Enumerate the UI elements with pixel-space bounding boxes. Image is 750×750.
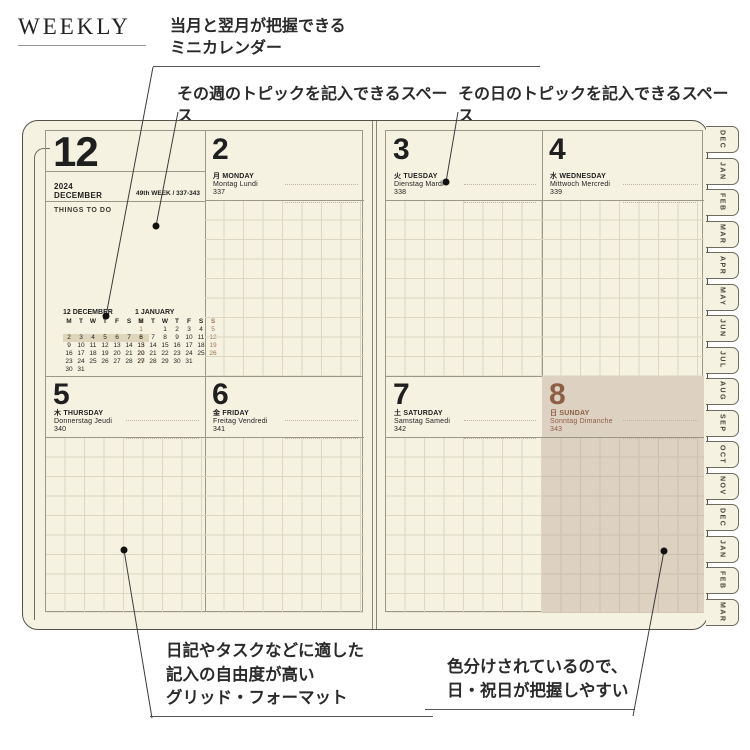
mini-calendar-cell: 20 xyxy=(111,350,123,358)
mini-calendar-cell: 25 xyxy=(87,358,99,366)
day-8-header: 8 日 SUNDAY Sonntag Dimanche 343 xyxy=(542,376,704,438)
day-cell-4: 4 水 WEDNESDAY Mittwoch Mercredi 339 xyxy=(542,131,704,376)
spine-line-left xyxy=(372,121,373,629)
month-tab-aug: AUG xyxy=(706,378,739,405)
mini-calendar-cell: 15 xyxy=(159,342,171,350)
day-topic-lines xyxy=(285,167,358,203)
mini-calendar-cell: 21 xyxy=(147,350,159,358)
month-number: 12 xyxy=(53,133,98,171)
mini-calendar-cell: 27 xyxy=(111,358,123,366)
weekday-block: 日 SUNDAY Sonntag Dimanche 343 xyxy=(550,410,613,434)
month-name-label: DECEMBER xyxy=(54,191,102,200)
mini-calendar-cell xyxy=(75,326,87,334)
mini-calendar-cell: 10 xyxy=(183,334,195,342)
writing-grid xyxy=(205,201,364,376)
mini-calendar-cell: 6 xyxy=(111,334,123,342)
day-cell-6: 6 金 FRIDAY Freitag Vendredi 341 xyxy=(205,376,364,613)
day-cell-5: 5 木 THURSDAY Donnerstag Jeudi 340 xyxy=(46,376,205,613)
writing-grid xyxy=(386,201,542,376)
day-3-header: 3 火 TUESDAY Dienstag Mardi 338 xyxy=(386,131,542,201)
month-tab-mar: MAR xyxy=(706,221,739,248)
mini-calendar-cell xyxy=(111,326,123,334)
mini-calendar-cell: 16 xyxy=(63,350,75,358)
mini-calendar-cell: 20 xyxy=(135,350,147,358)
mini-calendar-cell: 4 xyxy=(87,334,99,342)
month-tab-dec2: DEC xyxy=(706,504,739,531)
day-topic-lines xyxy=(126,403,199,439)
month-tab-mar2: MAR xyxy=(706,599,739,626)
spine-line-right xyxy=(376,121,377,629)
weekday-block: 水 WEDNESDAY Mittwoch Mercredi 339 xyxy=(550,173,610,197)
writing-grid xyxy=(46,438,205,613)
mini-calendar-cell: 9 xyxy=(63,342,75,350)
annotation-grid-format-line1: 日記やタスクなどに適した xyxy=(166,640,433,664)
writing-grid xyxy=(386,438,542,613)
month-tab-nov: NOV xyxy=(706,473,739,500)
mini-calendar-cell xyxy=(63,326,75,334)
mini-calendar-cell: 3 xyxy=(183,326,195,334)
mini-calendar-cell: T xyxy=(171,318,183,326)
date-number: 3 xyxy=(393,133,409,167)
date-number: 2 xyxy=(212,133,228,167)
mini-calendar-cell: 29 xyxy=(159,358,171,366)
annotation-grid-format: 日記やタスクなどに適した 記入の自由度が高い グリッド・フォーマット xyxy=(150,640,433,717)
annotation-grid-format-line2: 記入の自由度が高い xyxy=(166,664,433,688)
right-page: 3 火 TUESDAY Dienstag Mardi 338 4 水 WEDNE… xyxy=(385,130,703,612)
weekday-block: 金 FRIDAY Freitag Vendredi 341 xyxy=(213,410,268,434)
mini-calendar-cell: 26 xyxy=(99,358,111,366)
mini-calendar-cell: 7 xyxy=(147,334,159,342)
annotation-color-coded-line2: 日・祝日が把握しやすい xyxy=(447,679,635,703)
header-rule xyxy=(46,201,205,202)
mini-calendar-cell xyxy=(135,366,147,374)
annotation-mini-calendar-underline xyxy=(153,66,540,67)
mini-calendar-cell: 28 xyxy=(147,358,159,366)
month-rule xyxy=(46,171,205,172)
mini-calendar-cell: 9 xyxy=(171,334,183,342)
day-6-header: 6 金 FRIDAY Freitag Vendredi 341 xyxy=(205,376,364,438)
mini-calendar-cell xyxy=(147,326,159,334)
month-tab-sep: SEP xyxy=(706,410,739,437)
day-cell-2: 2 月 MONDAY Montag Lundi 337 xyxy=(205,131,364,376)
mini-calendar-cell xyxy=(87,326,99,334)
mini-calendar-cell: 14 xyxy=(123,342,135,350)
mini-calendar-cell: W xyxy=(87,318,99,326)
month-tab-oct: OCT xyxy=(706,441,739,468)
mini-calendar-cell: 3 xyxy=(75,334,87,342)
mini-calendar-cell: 8 xyxy=(159,334,171,342)
day-topic-lines xyxy=(464,167,536,203)
mini-calendar-cell: T xyxy=(99,318,111,326)
mini-calendar-cell: 17 xyxy=(75,350,87,358)
year-label: 2024 xyxy=(54,182,102,191)
mini-calendar-cell: 31 xyxy=(75,366,87,374)
mini-calendar-cell: M xyxy=(135,318,147,326)
mini-calendar-cell xyxy=(111,366,123,374)
mini-calendar-cell xyxy=(99,326,111,334)
things-to-do-label: THINGS TO DO xyxy=(54,207,112,214)
weekly-feature-diagram: WEEKLY 当月と翌月が把握できる ミニカレンダー その週のトピックを記入でき… xyxy=(0,0,750,750)
month-tab-feb: FEB xyxy=(706,189,739,216)
day-cell-8-sunday: 8 日 SUNDAY Sonntag Dimanche 343 xyxy=(542,376,704,613)
mini-calendar-cell: 6 xyxy=(135,334,147,342)
mini-calendar-cell: 23 xyxy=(171,350,183,358)
mini-calendar-cell: 16 xyxy=(171,342,183,350)
mini-calendar-cell: 23 xyxy=(63,358,75,366)
mini-calendar-cell: 7 xyxy=(123,334,135,342)
mini-calendar-cell: 24 xyxy=(183,350,195,358)
mini-calendar-cell: 22 xyxy=(159,350,171,358)
writing-grid xyxy=(205,438,364,613)
mini-calendar-cell: 2 xyxy=(63,334,75,342)
date-number: 7 xyxy=(393,378,409,412)
mini-calendar-cell: 14 xyxy=(147,342,159,350)
annotation-mini-calendar-line1: 当月と翌月が把握できる xyxy=(170,16,346,38)
mini-calendar-cell xyxy=(135,326,147,334)
mini-calendar-cell: S xyxy=(123,318,135,326)
mini-calendar-cell: 24 xyxy=(75,358,87,366)
annotation-color-coded-line1: 色分けされているので、 xyxy=(447,655,635,679)
mini-calendar-cell: 19 xyxy=(99,350,111,358)
mini-calendar-cell: 28 xyxy=(123,358,135,366)
date-number: 6 xyxy=(212,378,228,412)
writing-grid xyxy=(542,438,704,613)
day-4-header: 4 水 WEDNESDAY Mittwoch Mercredi 339 xyxy=(542,131,704,201)
mini-calendar-cell: F xyxy=(111,318,123,326)
month-tab-feb2: FEB xyxy=(706,567,739,594)
mini-calendar-cell: M xyxy=(63,318,75,326)
page-title: WEEKLY xyxy=(18,14,146,46)
month-tab-may: MAY xyxy=(706,284,739,311)
day-cell-7: 7 土 SATURDAY Samstag Samedi 342 xyxy=(386,376,542,613)
mini-calendar-cell: 13 xyxy=(135,342,147,350)
weekday-block: 木 THURSDAY Donnerstag Jeudi 340 xyxy=(54,410,112,434)
month-tab-apr: APR xyxy=(706,252,739,279)
day-5-header: 5 木 THURSDAY Donnerstag Jeudi 340 xyxy=(46,376,205,438)
day-2-header: 2 月 MONDAY Montag Lundi 337 xyxy=(205,131,364,201)
mini-calendar-cell xyxy=(123,366,135,374)
month-tab-dec: DEC xyxy=(706,126,739,153)
weekday-block: 火 TUESDAY Dienstag Mardi 338 xyxy=(394,173,444,197)
month-tab-jul: JUL xyxy=(706,347,739,374)
mini-calendar-cell: 10 xyxy=(75,342,87,350)
year-month-label: 2024 DECEMBER xyxy=(54,182,102,200)
left-page: 12 2024 DECEMBER 49th WEEK / 337-343 THI… xyxy=(45,130,363,612)
day-topic-lines xyxy=(623,403,698,439)
mini-calendar-cell: 5 xyxy=(99,334,111,342)
mini-calendar-cell: 30 xyxy=(63,366,75,374)
mini-calendar-cell xyxy=(99,366,111,374)
mini-calendar-cell: 21 xyxy=(123,350,135,358)
day-cell-3: 3 火 TUESDAY Dienstag Mardi 338 xyxy=(386,131,542,376)
planner-notebook: 12 2024 DECEMBER 49th WEEK / 337-343 THI… xyxy=(22,120,708,630)
mini-calendar-cell: F xyxy=(183,318,195,326)
mini-calendar-cell: W xyxy=(159,318,171,326)
mini-calendar-cell: 11 xyxy=(87,342,99,350)
mini-calendar-cell: 17 xyxy=(183,342,195,350)
mini-calendar-cell: 1 xyxy=(159,326,171,334)
writing-grid xyxy=(542,201,704,376)
mini-calendar-cell: T xyxy=(147,318,159,326)
mini-calendar-cell: 12 xyxy=(99,342,111,350)
mini-calendar-cell: 31 xyxy=(183,358,195,366)
mini-calendar-cell: 18 xyxy=(87,350,99,358)
day-topic-lines xyxy=(623,167,698,203)
month-tab-jan2: JAN xyxy=(706,536,739,563)
date-number: 5 xyxy=(53,378,69,412)
weekday-block: 月 MONDAY Montag Lundi 337 xyxy=(213,173,258,197)
mini-calendar-cell: T xyxy=(75,318,87,326)
mini-calendar-cell: 13 xyxy=(111,342,123,350)
annotation-mini-calendar: 当月と翌月が把握できる ミニカレンダー xyxy=(170,16,346,60)
mini-calendar-cell xyxy=(123,326,135,334)
mini-calendar-cell: 2 xyxy=(171,326,183,334)
month-tab-jan: JAN xyxy=(706,158,739,185)
annotation-mini-calendar-line2: ミニカレンダー xyxy=(170,38,346,60)
mini-calendar-cell: 30 xyxy=(171,358,183,366)
date-number: 8 xyxy=(549,378,565,412)
day-topic-lines xyxy=(285,403,358,439)
mini-calendar-week-row: 3031 xyxy=(63,366,149,374)
date-number: 4 xyxy=(549,133,565,167)
week-info-cell: 12 2024 DECEMBER 49th WEEK / 337-343 THI… xyxy=(46,131,205,376)
day-7-header: 7 土 SATURDAY Samstag Samedi 342 xyxy=(386,376,542,438)
weekday-block: 土 SATURDAY Samstag Samedi 342 xyxy=(394,410,450,434)
mini-calendar-cell xyxy=(87,366,99,374)
day-topic-lines xyxy=(464,403,536,439)
week-number-label: 49th WEEK / 337-343 xyxy=(136,190,200,197)
month-tab-jun: JUN xyxy=(706,315,739,342)
annotation-color-coded: 色分けされているので、 日・祝日が把握しやすい xyxy=(425,655,635,710)
mini-calendar-cell: 27 xyxy=(135,358,147,366)
annotation-grid-format-line3: グリッド・フォーマット xyxy=(166,687,433,711)
